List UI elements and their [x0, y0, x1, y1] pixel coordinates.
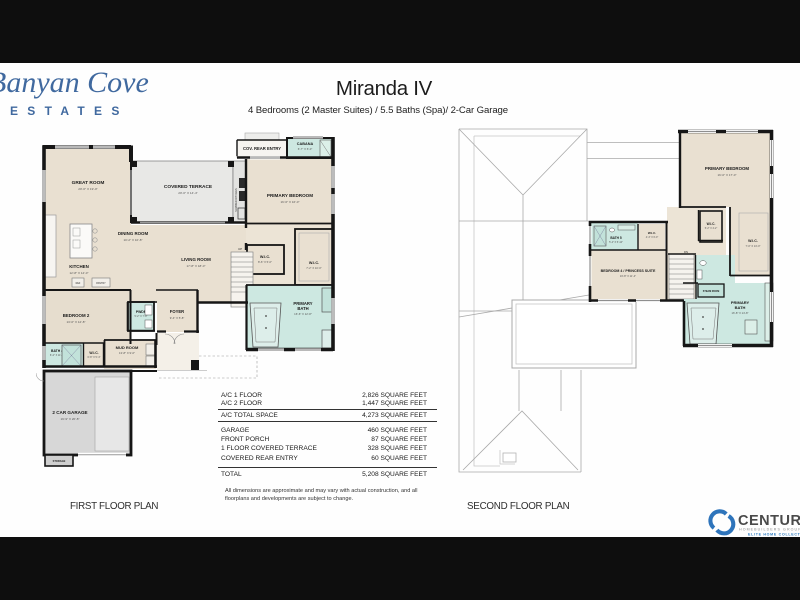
svg-text:6'-8" X 5'-4": 6'-8" X 5'-4" [87, 356, 100, 359]
svg-text:BATH 4: BATH 4 [51, 349, 63, 353]
svg-text:PRIMARY BEDROOM: PRIMARY BEDROOM [705, 166, 749, 171]
svg-text:12'-8" X 14'-0": 12'-8" X 14'-0" [70, 271, 89, 275]
svg-text:13'-0" X 12'-8": 13'-0" X 12'-8" [67, 320, 86, 324]
svg-text:STEAM ROOM: STEAM ROOM [703, 290, 719, 293]
svg-text:W.I.C.: W.I.C. [309, 261, 319, 265]
svg-text:W.I.C.: W.I.C. [707, 222, 716, 226]
svg-text:6'-7" X 6'-0": 6'-7" X 6'-0" [298, 147, 313, 151]
svg-text:ELITE HOME COLLECTION: ELITE HOME COLLECTION [748, 533, 800, 537]
svg-text:PANTRY: PANTRY [96, 282, 106, 285]
svg-text:W.I.C.: W.I.C. [260, 255, 270, 259]
svg-text:19'-9" X 20'-8": 19'-9" X 20'-8" [61, 417, 80, 421]
svg-text:BEDROOM 4 / PRINCESS SUITE: BEDROOM 4 / PRINCESS SUITE [601, 269, 656, 273]
svg-text:5'-4" X 5'-10": 5'-4" X 5'-10" [609, 241, 623, 244]
svg-text:2 CAR GARAGE: 2 CAR GARAGE [52, 410, 87, 415]
svg-text:UP: UP [238, 247, 242, 251]
svg-text:COV. REAR ENTRY: COV. REAR ENTRY [243, 146, 281, 151]
svg-text:BATH 5: BATH 5 [610, 236, 622, 240]
svg-text:SUMMER KITCHEN: SUMMER KITCHEN [234, 188, 238, 212]
svg-text:16'-8" X 11'-4": 16'-8" X 11'-4" [620, 274, 636, 278]
svg-text:STORAGE: STORAGE [53, 459, 66, 463]
svg-text:HOMEBUILDERS GROUP: HOMEBUILDERS GROUP [739, 528, 800, 532]
svg-text:16'-0" X 17'-0": 16'-0" X 17'-0" [718, 173, 737, 177]
svg-text:MUD ROOM: MUD ROOM [116, 345, 139, 350]
svg-text:CABANA: CABANA [297, 142, 314, 146]
svg-text:DINING ROOM: DINING ROOM [118, 231, 149, 236]
svg-text:COVERED TERRACE: COVERED TERRACE [164, 184, 213, 190]
svg-text:W.I.C.: W.I.C. [89, 351, 98, 355]
svg-text:16'-6" X 16'-0": 16'-6" X 16'-0" [281, 200, 300, 204]
svg-text:20'-0" X 14'-4": 20'-0" X 14'-4" [178, 191, 198, 195]
svg-text:16'-8" X 14'-8": 16'-8" X 14'-8" [732, 311, 749, 315]
svg-text:17'-8" X 18'-0": 17'-8" X 18'-0" [187, 264, 206, 268]
svg-text:PRIMARY BEDROOM: PRIMARY BEDROOM [267, 193, 313, 198]
svg-text:W.I.C.: W.I.C. [748, 239, 758, 243]
svg-text:16'-6" X 12'-8": 16'-6" X 12'-8" [294, 312, 312, 316]
svg-text:GREAT ROOM: GREAT ROOM [72, 180, 105, 186]
svg-text:8'-6" X 5'-0": 8'-6" X 5'-0" [258, 260, 272, 264]
svg-text:KITCHEN: KITCHEN [69, 264, 89, 269]
svg-text:9'-4" X 5'-8": 9'-4" X 5'-8" [170, 316, 185, 320]
svg-text:BATH: BATH [735, 305, 746, 310]
svg-text:5'-2" X 7'-8": 5'-2" X 7'-8" [134, 315, 147, 318]
svg-text:BATH: BATH [297, 306, 308, 311]
svg-text:REF: REF [76, 282, 81, 285]
svg-text:LIVING ROOM: LIVING ROOM [181, 257, 211, 262]
svg-text:7'-2" X 10'-0": 7'-2" X 10'-0" [306, 266, 322, 270]
svg-text:W.I.C.: W.I.C. [648, 231, 656, 235]
svg-text:5'-2" X 4'-2": 5'-2" X 4'-2" [705, 227, 718, 230]
svg-text:20'-0" X 19'-0": 20'-0" X 19'-0" [78, 187, 98, 191]
svg-text:10'-2" X 10'-8": 10'-2" X 10'-8" [124, 238, 143, 242]
svg-text:4'-4" X 6'-0": 4'-4" X 6'-0" [646, 236, 659, 239]
svg-text:BEDROOM 2: BEDROOM 2 [63, 313, 90, 318]
svg-text:7'-0" X 13'-0": 7'-0" X 13'-0" [746, 244, 761, 248]
svg-text:FOYER: FOYER [170, 309, 184, 314]
svg-text:13'-8" X 9'-0": 13'-8" X 9'-0" [119, 351, 135, 355]
